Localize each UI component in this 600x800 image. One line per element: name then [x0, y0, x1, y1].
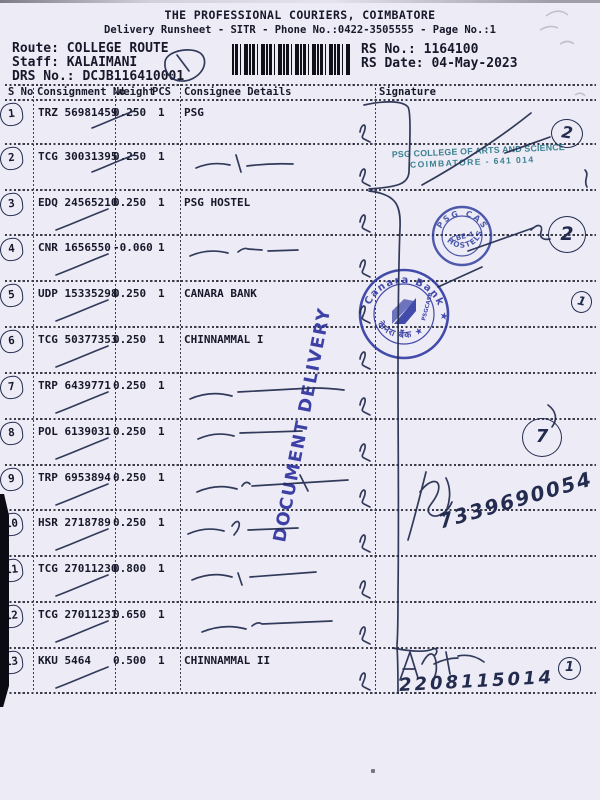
col-header-signature: Signature [379, 86, 436, 98]
row-weight: 0.250 [113, 333, 146, 346]
row-pcs: 1 [158, 106, 165, 119]
row-weight: 0.650 [113, 608, 146, 621]
row-pcs: 1 [158, 150, 165, 163]
route-value: COLLEGE ROUTE [67, 41, 169, 56]
row-pcs: 1 [158, 516, 165, 529]
row-weight: 0.800 [113, 562, 146, 575]
row-weight: 0.250 [113, 379, 146, 392]
document-subtitle: Delivery Runsheet - SITR - Phone No.:042… [0, 24, 600, 36]
row-consignee: CANARA BANK [184, 287, 257, 300]
row-consignment-no: TCG 50377353 [38, 333, 117, 346]
row-pcs: 1 [158, 333, 165, 346]
row-weight: 0.250 [113, 150, 146, 163]
col-header-consignment: Consignment No [37, 86, 126, 98]
row-consignment-no: TCG 27011230 [38, 562, 117, 575]
psg-hostel-round-stamp: PSG CAS HOSTELS CBE-4 [430, 204, 494, 268]
row-pcs: 1 [158, 562, 165, 575]
row-consignment-no: EDQ 24565210 [38, 196, 117, 209]
row-pcs: 1 [158, 608, 165, 621]
row-weight: 0.250 [113, 287, 146, 300]
col-header-weight: Weight [117, 86, 155, 98]
row-consignee: PSG [184, 106, 204, 119]
drs-value: DCJB116410001 [82, 69, 184, 84]
row-weight: 0.250 [113, 106, 146, 119]
row-pcs: 1 [158, 471, 165, 484]
document-title: THE PROFESSIONAL COURIERS, COIMBATORE [0, 8, 600, 22]
row-consignment-no: HSR 2718789 [38, 516, 111, 529]
col-header-sno: S No [8, 86, 33, 98]
row-sno: 1 [0, 102, 24, 127]
circled-annotation-2b: 2 [548, 216, 586, 253]
row-sno: 4 [0, 237, 24, 262]
route-line: Route: COLLEGE ROUTE [12, 41, 169, 56]
row-weight: 0.250 [113, 471, 146, 484]
row-consignee: CHINNAMMAL I [184, 333, 263, 346]
col-header-pcs: PCS [152, 86, 171, 98]
circled-annotation-1b: 1 [558, 657, 581, 680]
table-rule-horizontal [5, 84, 596, 86]
col-header-consignee: Consignee Details [184, 86, 291, 98]
row-pcs: 1 [158, 379, 165, 392]
row-consignee: PSG HOSTEL [184, 196, 250, 209]
row-sno: 5 [0, 283, 24, 308]
table-row: 12TCG 270112310.6501 [0, 601, 600, 647]
svg-text:PSG CAS: PSG CAS [435, 209, 489, 231]
table-rule-horizontal [5, 692, 596, 694]
row-consignment-no: TRP 6953894 [38, 471, 111, 484]
rs-no-line: RS No.: 1164100 [361, 42, 478, 57]
row-weight: 0.250 [113, 196, 146, 209]
delivery-runsheet-scan: THE PROFESSIONAL COURIERS, COIMBATORE De… [0, 0, 600, 800]
staff-label: Staff: [12, 55, 67, 70]
psg-hostel-ring-top-text: PSG CAS [435, 209, 489, 231]
circled-annotation-7: 7 [522, 418, 562, 457]
row-consignment-no: CNR 1656550 [38, 241, 111, 254]
scan-artifact-strip [0, 494, 9, 707]
row-sno: 9 [0, 467, 24, 492]
rs-date-label: RS Date: [361, 56, 431, 71]
rs-date-line: RS Date: 04-May-2023 [361, 56, 518, 71]
row-consignment-no: TRZ 56981459 [38, 106, 117, 119]
table-row: 10HSR 27187890.2501 [0, 509, 600, 555]
row-weight: 0.250 [113, 425, 146, 438]
row-consignment-no: TCG 30031395 [38, 150, 117, 163]
row-pcs: 1 [158, 654, 165, 667]
row-sno: 8 [0, 421, 24, 446]
row-sno: 7 [0, 375, 24, 400]
row-pcs: 1 [158, 241, 165, 254]
route-label: Route: [12, 41, 67, 56]
drs-line: DRS No.: DCJB116410001 [12, 69, 184, 84]
canara-bank-round-stamp: Canara Bank ★ केनरा बैंक ★ PSGCASB [356, 266, 452, 362]
table-row: 6TCG 503773530.2501CHINNAMMAL I [0, 326, 600, 372]
row-pcs: 1 [158, 287, 165, 300]
canara-branch-code-text: PSGCASB [421, 292, 434, 322]
row-pcs: 1 [158, 425, 165, 438]
row-consignment-no: TRP 6439771 [38, 379, 111, 392]
row-consignment-no: POL 6139031 [38, 425, 111, 438]
row-sno: 6 [0, 329, 24, 354]
table-row: 1TRZ 569814590.2501PSG [0, 99, 600, 143]
row-weight: 0.500 [113, 654, 146, 667]
drs-label: DRS No.: [12, 69, 82, 84]
staff-value: KALAIMANI [67, 55, 137, 70]
row-consignment-no: UDP 15335298 [38, 287, 117, 300]
row-sno: 3 [0, 192, 24, 217]
scan-speck [371, 769, 375, 773]
rs-no-label: RS No.: [361, 42, 424, 57]
row-consignee: CHINNAMMAL II [184, 654, 270, 667]
rs-no-value: 1164100 [424, 42, 479, 57]
row-weight: 0.250 [113, 516, 146, 529]
row-weight: -0.060 [113, 241, 153, 254]
row-sno: 2 [0, 146, 24, 171]
row-consignment-no: TCG 27011231 [38, 608, 117, 621]
table-row: 11TCG 270112300.8001 [0, 555, 600, 601]
barcode [232, 44, 350, 75]
row-consignment-no: KKU 5464 [38, 654, 91, 667]
scan-edge-shadow [0, 0, 600, 3]
staff-line: Staff: KALAIMANI [12, 55, 137, 70]
row-pcs: 1 [158, 196, 165, 209]
table-row: 3EDQ 245652100.2501PSG HOSTEL [0, 189, 600, 234]
rs-date-value: 04-May-2023 [431, 56, 517, 71]
table-row: 4CNR 1656550-0.0601 [0, 234, 600, 280]
table-row: 5UDP 153352980.2501CANARA BANK [0, 280, 600, 326]
